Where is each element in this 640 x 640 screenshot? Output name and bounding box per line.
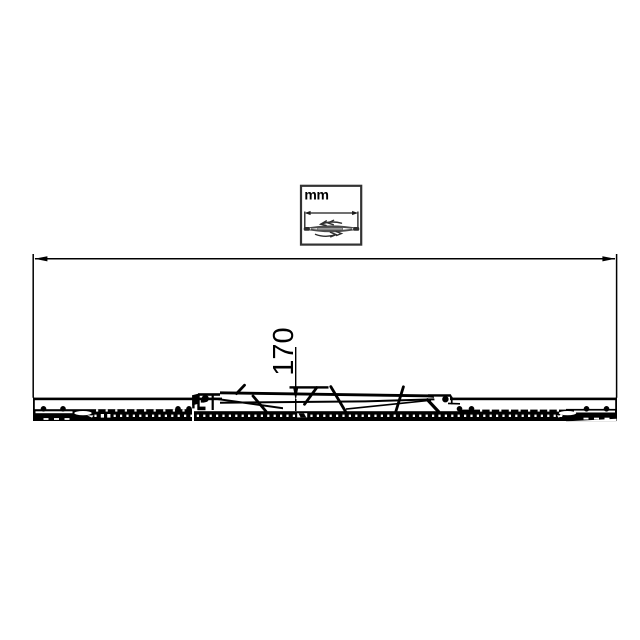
svg-text:mm: mm [304, 187, 328, 203]
